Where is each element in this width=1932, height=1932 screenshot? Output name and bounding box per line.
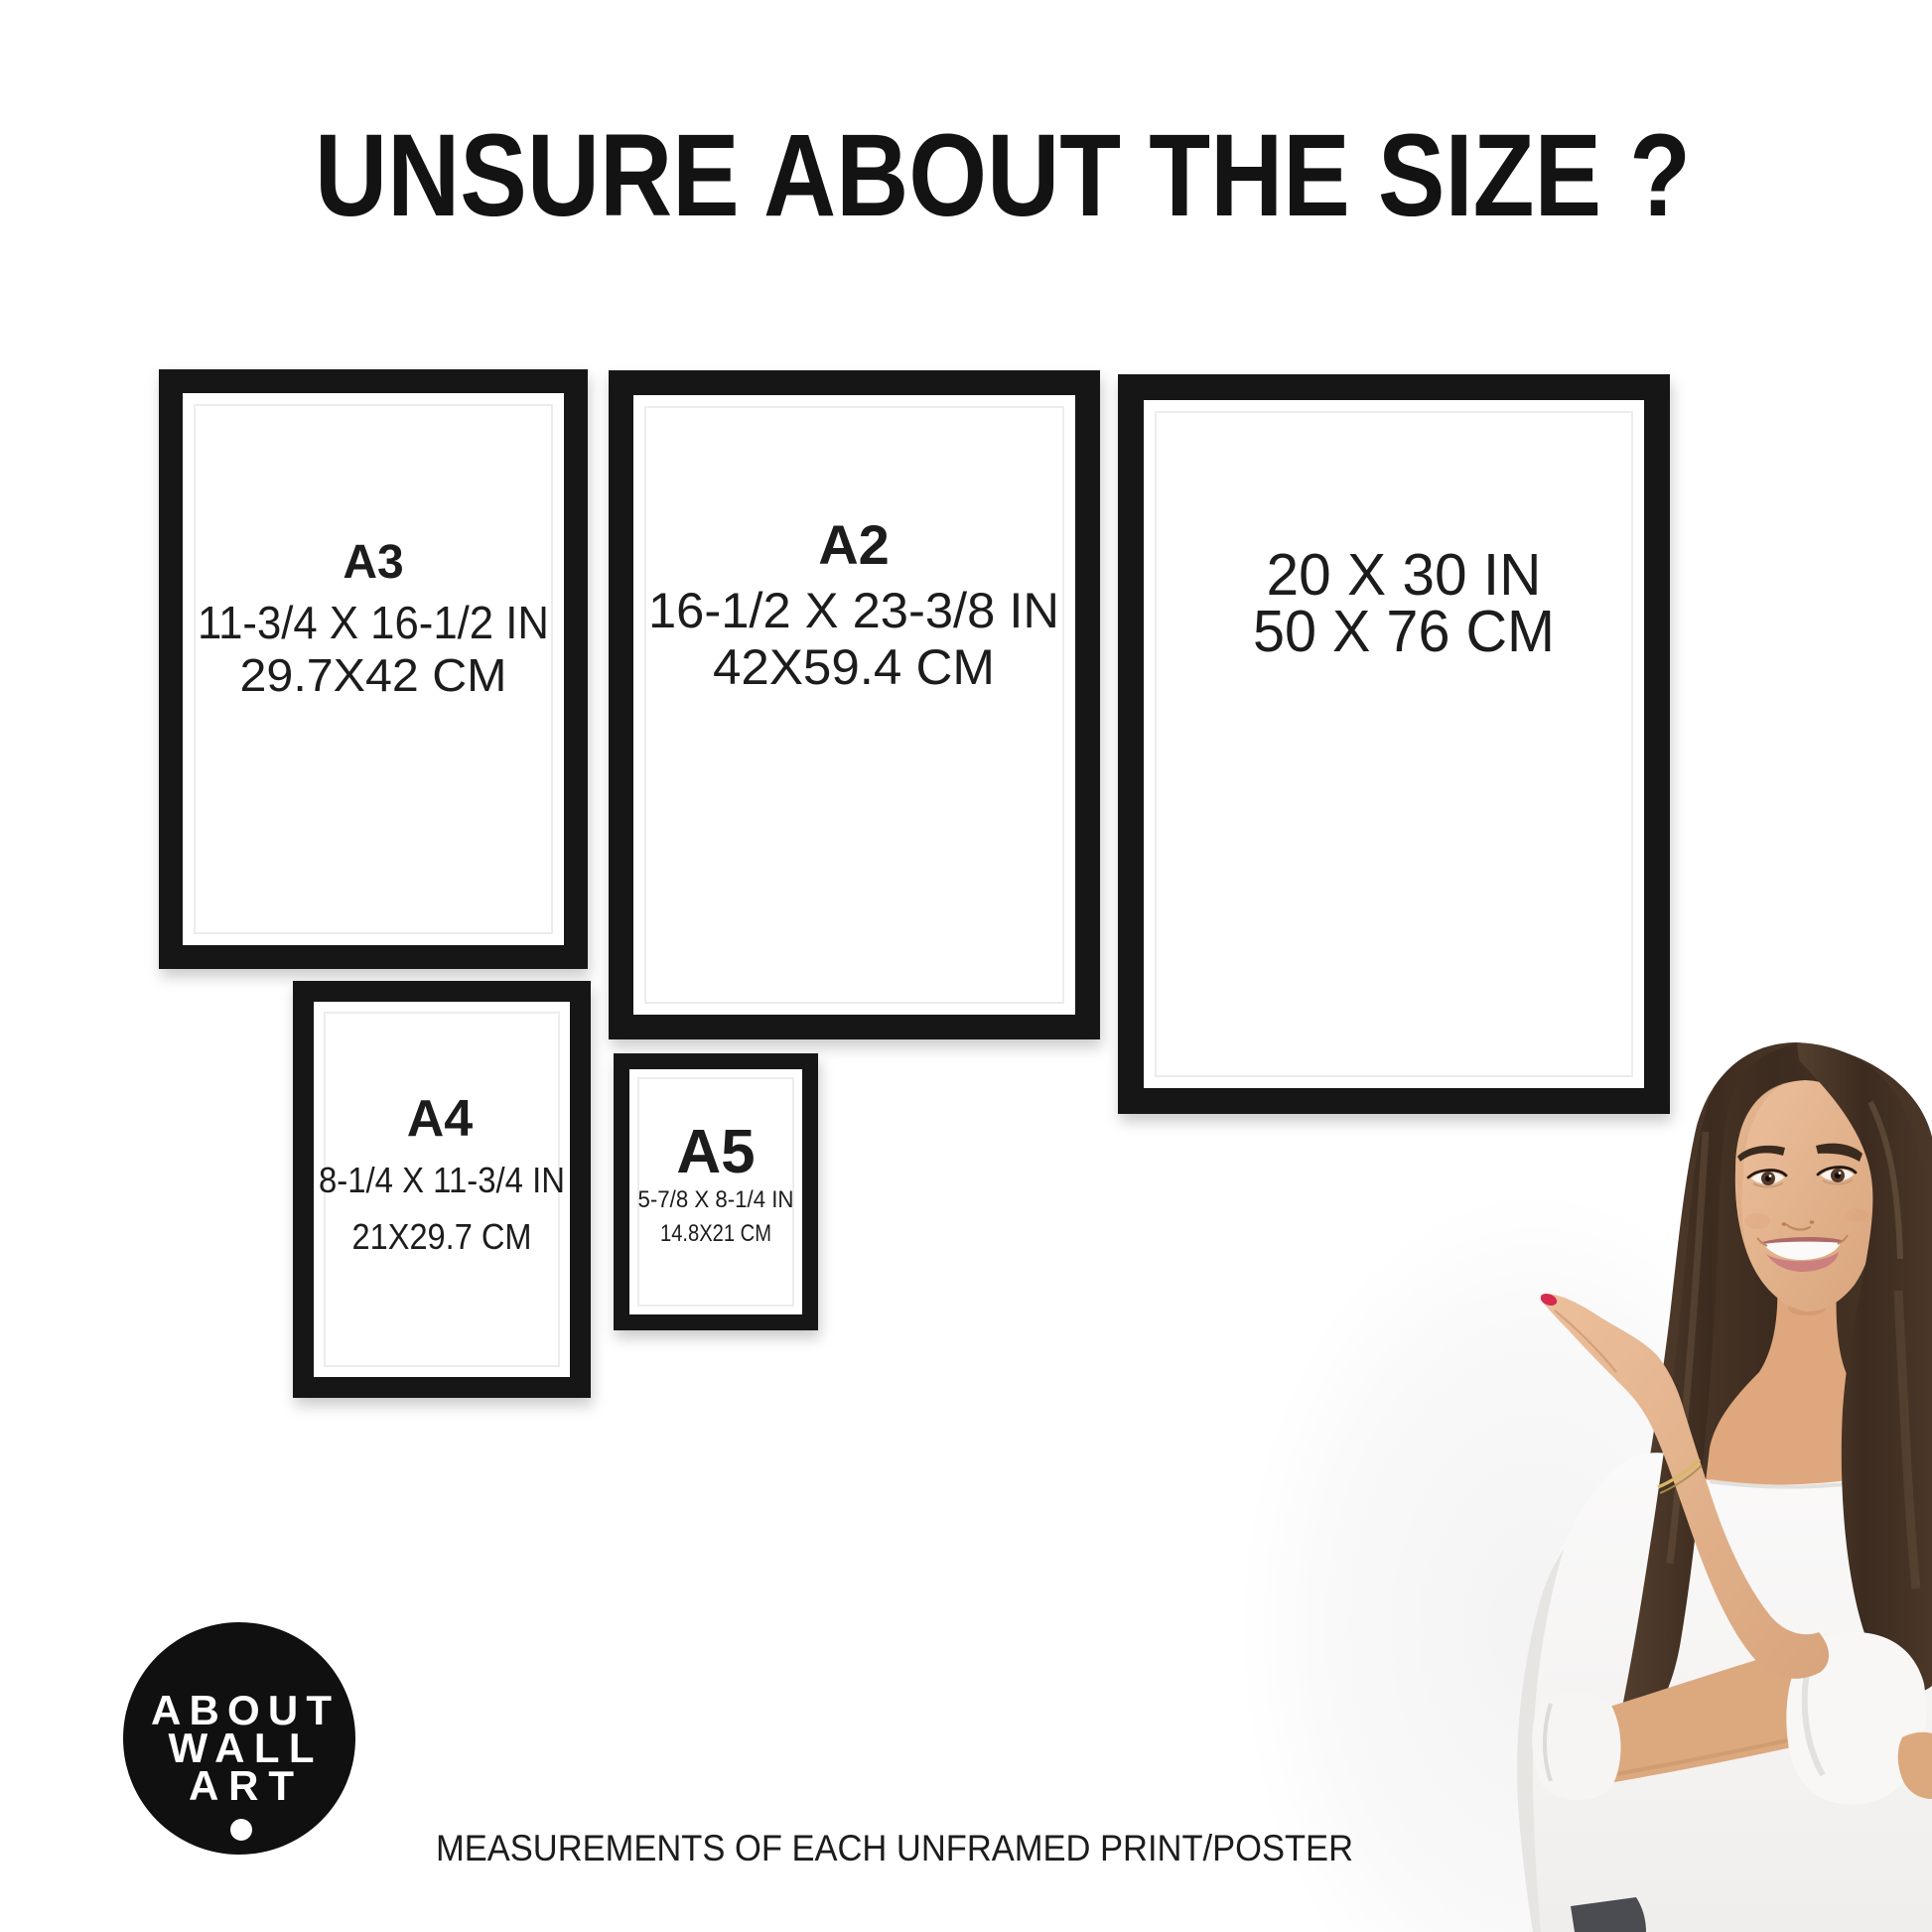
svg-text:42X59.4 CM: 42X59.4 CM (713, 639, 995, 695)
svg-text:29.7X42 CM: 29.7X42 CM (240, 649, 507, 701)
svg-text:11-3/4 X 16-1/2 IN: 11-3/4 X 16-1/2 IN (198, 597, 549, 648)
svg-text:21X29.7 CM: 21X29.7 CM (352, 1216, 532, 1257)
svg-text:A2: A2 (818, 513, 890, 576)
svg-text:A4: A4 (407, 1090, 474, 1148)
svg-text:UNSURE ABOUT THE SIZE ?: UNSURE ABOUT THE SIZE ? (315, 110, 1691, 241)
svg-text:14.8X21 CM: 14.8X21 CM (660, 1220, 771, 1247)
svg-text:MEASUREMENTS OF EACH UNFRAMED: MEASUREMENTS OF EACH UNFRAMED PRINT/POST… (436, 1828, 1353, 1868)
svg-text:ART: ART (189, 1762, 294, 1809)
svg-text:16-1/2 X 23-3/8 IN: 16-1/2 X 23-3/8 IN (648, 583, 1059, 638)
svg-text:5-7/8 X 8-1/4 IN: 5-7/8 X 8-1/4 IN (638, 1186, 794, 1213)
svg-text:A3: A3 (343, 536, 403, 589)
svg-text:50 X 76 CM: 50 X 76 CM (1253, 599, 1555, 664)
svg-text:8-1/4 X 11-3/4 IN: 8-1/4 X 11-3/4 IN (319, 1160, 565, 1200)
svg-text:A5: A5 (676, 1118, 755, 1186)
